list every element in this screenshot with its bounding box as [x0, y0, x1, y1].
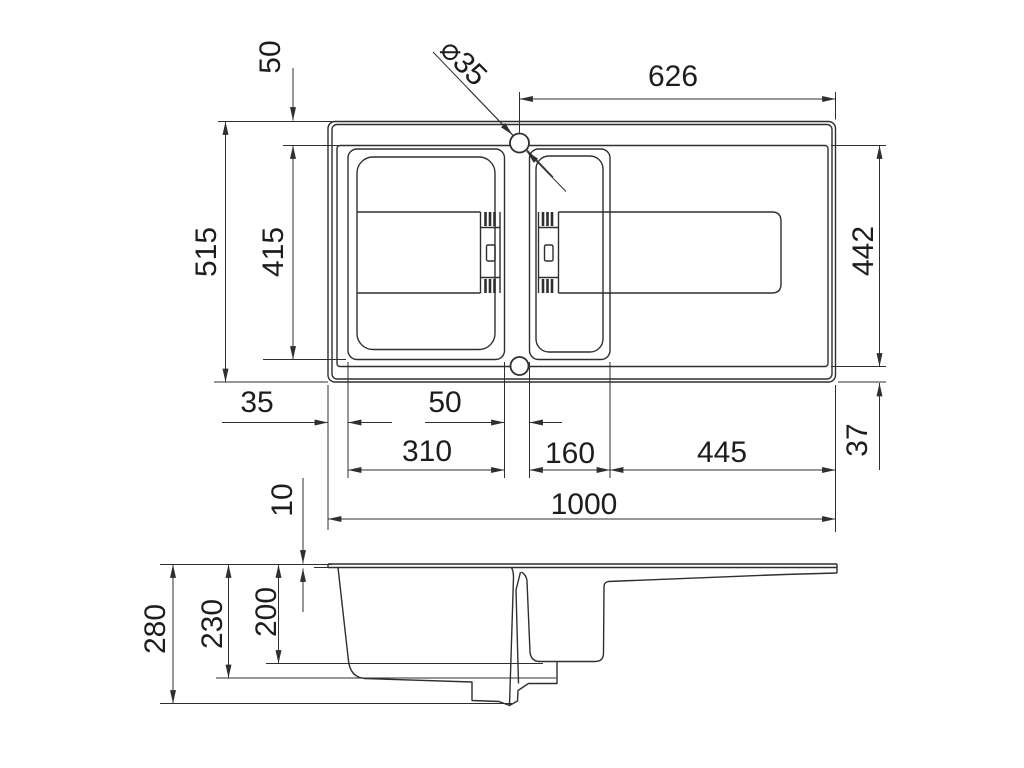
dim-bowl-front-to-back: 415 — [259, 227, 289, 277]
dim-bowl-depth: 200 — [252, 587, 282, 637]
dim-rim-thickness: 10 — [268, 483, 298, 516]
dim-hole-to-right-edge: 626 — [648, 62, 698, 92]
dim-edge-to-bowl-left: 35 — [240, 388, 273, 418]
bowls-top-view — [348, 149, 610, 360]
faucet-hole-bottom — [511, 357, 529, 375]
sink-technical-drawing: ⌀35 50 626 515 415 442 35 50 310 160 445… — [0, 0, 1024, 768]
dimension-linework-side-view — [160, 478, 556, 704]
dim-main-bowl-width: 310 — [402, 437, 452, 467]
overflow-detail-half-bowl — [539, 212, 559, 293]
dim-between-bowls: 50 — [428, 388, 461, 418]
dim-inner-to-edge-bottom: 37 — [843, 423, 873, 456]
dim-drainboard-width: 445 — [697, 438, 747, 468]
dim-inner-front-to-back: 442 — [849, 226, 879, 276]
dim-half-bowl-width: 160 — [545, 439, 595, 469]
dim-overall-height: 280 — [141, 604, 171, 654]
overflow-detail-main-bowl — [481, 212, 501, 293]
dim-rim-to-bowl: 50 — [256, 40, 286, 73]
drainboard-band — [357, 212, 781, 293]
dim-overall-width: 1000 — [551, 490, 618, 520]
top-view-outline — [328, 122, 836, 383]
dim-main-bowl-depth: 230 — [198, 599, 228, 649]
dim-overall-depth: 515 — [192, 227, 222, 277]
side-view-profile — [328, 564, 837, 706]
faucet-holes — [510, 134, 529, 376]
faucet-hole-top — [510, 134, 529, 153]
